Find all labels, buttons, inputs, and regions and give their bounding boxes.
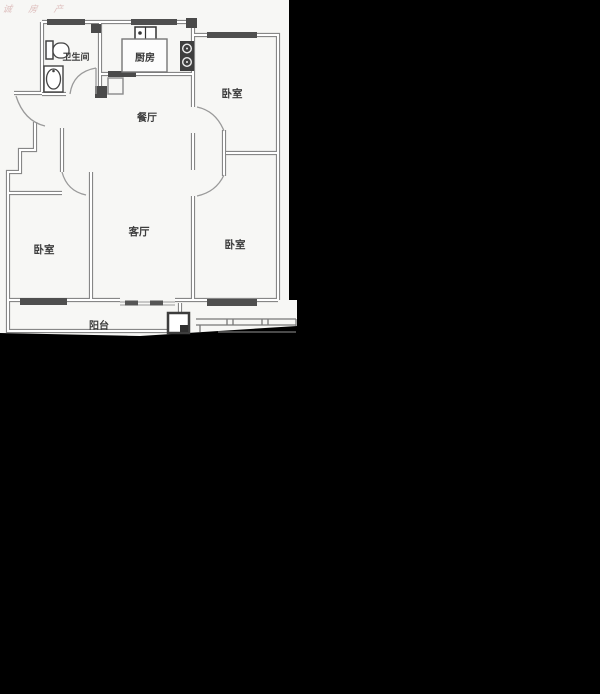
washbasin-tap-icon [52, 70, 55, 73]
bedroom-br-window-bar [207, 299, 257, 306]
bathroom-window-bar [47, 19, 85, 25]
floorplan-svg: 卫生间 厨房 餐厅 卧室 卧室 卧室 客厅 阳台 [0, 0, 600, 694]
watermark-text: 诚 房 产 [2, 2, 71, 15]
sliding-door-leaf [150, 301, 163, 306]
sink-tap-icon [138, 31, 142, 35]
room-label-bedroom-top-right: 卧室 [222, 87, 243, 100]
room-label-bedroom-left: 卧室 [34, 243, 55, 256]
room-label-kitchen: 厨房 [135, 51, 155, 64]
kitchen-window-bar [131, 19, 177, 25]
sliding-door-leaf [125, 301, 138, 306]
room-label-dining: 餐厅 [136, 111, 157, 124]
room-label-bedroom-bottom-right: 卧室 [225, 238, 246, 251]
toilet-icon [46, 41, 53, 59]
burner-dot [186, 48, 188, 50]
bedroom-tr-window-bar [207, 32, 257, 38]
pier-block [95, 86, 107, 98]
room-label-balcony: 阳台 [89, 319, 109, 332]
pier-block [186, 18, 197, 28]
shaft-fill [180, 325, 188, 332]
room-label-living: 客厅 [128, 225, 150, 238]
room-label-bathroom: 卫生间 [62, 51, 89, 62]
bedroom-left-window-bar [20, 298, 67, 305]
screenshot-canvas: 卫生间 厨房 餐厅 卧室 卧室 卧室 客厅 阳台 诚 房 产 [0, 0, 600, 694]
utility-shaft [168, 313, 189, 333]
pier-block [91, 24, 101, 33]
burner-dot [186, 61, 188, 63]
